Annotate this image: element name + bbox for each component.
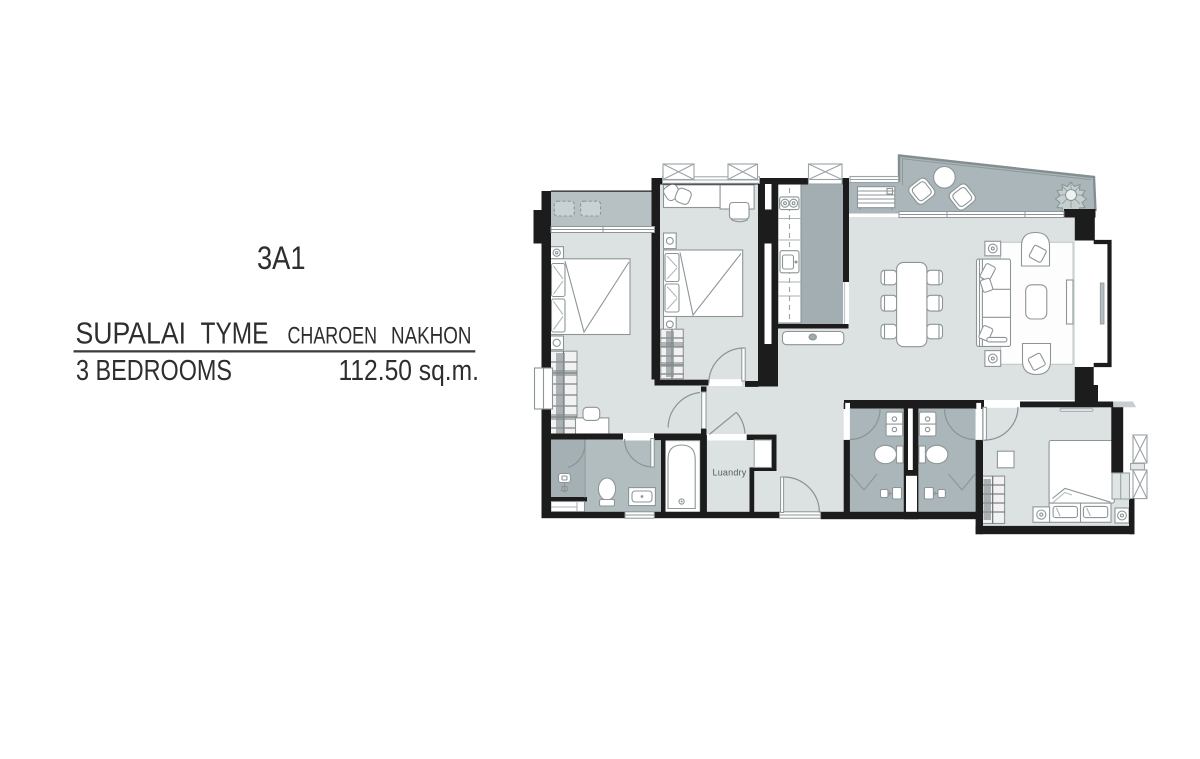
svg-text:CHAROEN: CHAROEN: [288, 322, 378, 349]
svg-text:TYME: TYME: [201, 316, 269, 351]
svg-text:NAKHON: NAKHON: [391, 322, 472, 349]
svg-text:SUPALAI: SUPALAI: [76, 316, 187, 351]
svg-text:3A1: 3A1: [257, 240, 306, 276]
svg-text:112.50 sq.m.: 112.50 sq.m.: [339, 355, 480, 387]
svg-text:3 BEDROOMS: 3 BEDROOMS: [76, 355, 232, 387]
svg-text:Luandry: Luandry: [713, 468, 747, 478]
